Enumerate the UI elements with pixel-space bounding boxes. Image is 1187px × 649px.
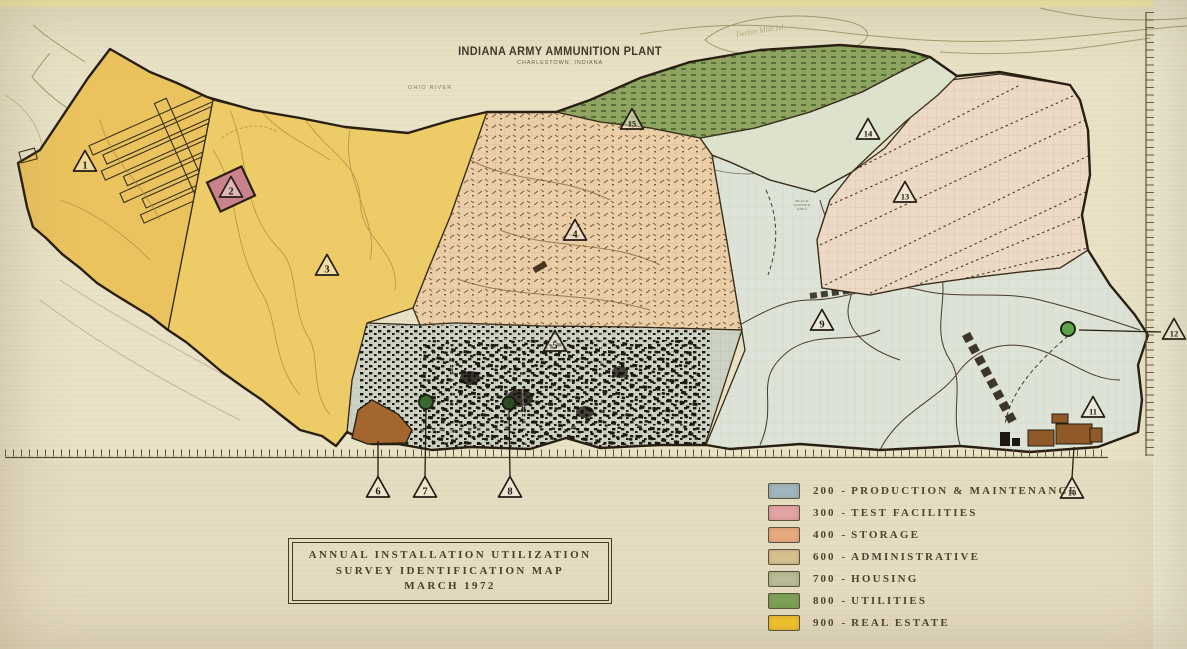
legend-item-300: 300-TEST FACILITIES — [768, 502, 1078, 524]
legend-name: TEST FACILITIES — [851, 507, 977, 519]
marker-number: 6 — [375, 487, 380, 498]
title-box-line-2: SURVEY IDENTIFICATION MAP — [336, 564, 564, 579]
legend-separator: - — [842, 595, 846, 607]
legend-separator: - — [842, 617, 846, 629]
site-7-circle — [419, 395, 433, 409]
legend-label: 900-REAL ESTATE — [813, 617, 950, 629]
legend-color-swatch — [768, 615, 800, 632]
marker-number: 2 — [228, 187, 233, 198]
zone-5-buildings — [360, 325, 710, 450]
title-box-line-3: MARCH 1972 — [404, 579, 496, 594]
legend-item-400: 400-STORAGE — [768, 524, 1078, 546]
map-subtitle: CHARLESTOWN, INDIANA — [375, 60, 745, 66]
legend-code: 200 — [813, 485, 836, 497]
legend-name: UTILITIES — [851, 595, 927, 607]
marker-number: 4 — [572, 230, 578, 241]
legend-item-800: 800-UTILITIES — [768, 590, 1078, 612]
marker-number: 15 — [628, 119, 637, 129]
marker-number: 8 — [507, 487, 512, 498]
legend-item-700: 700-HOUSING — [768, 568, 1078, 590]
marker-number: 1 — [82, 161, 87, 172]
marker-number: 7 — [422, 487, 427, 498]
legend-color-swatch — [768, 505, 800, 522]
legend-label: 400-STORAGE — [813, 529, 920, 541]
map-title-box: ANNUAL INSTALLATION UTILIZATION SURVEY I… — [288, 538, 612, 604]
marker-number: 12 — [1170, 329, 1179, 339]
marker-number: 11 — [1089, 407, 1097, 417]
legend-name: STORAGE — [851, 529, 920, 541]
right-margin-ruler — [1146, 12, 1150, 456]
legend-code: 300 — [813, 507, 836, 519]
legend-label: 700-HOUSING — [813, 573, 919, 585]
legend-name: HOUSING — [851, 573, 918, 585]
legend-label: 300-TEST FACILITIES — [813, 507, 978, 519]
legend-color-swatch — [768, 549, 800, 566]
legend-color-swatch — [768, 527, 800, 544]
legend-label: 800-UTILITIES — [813, 595, 927, 607]
marker-6: 6 — [367, 441, 390, 498]
land-use-legend: 200-PRODUCTION & MAINTENANCE 300-TEST FA… — [768, 480, 1078, 634]
legend-label: 600-ADMINISTRATIVE — [813, 551, 980, 563]
legend-separator: - — [842, 529, 846, 541]
site-8-circle — [503, 397, 516, 410]
legend-item-900: 900-REAL ESTATE — [768, 612, 1078, 634]
legend-name: PRODUCTION & MAINTENANCE — [851, 485, 1078, 497]
legend-separator: - — [842, 485, 846, 497]
site-12-circle — [1061, 322, 1075, 336]
map-title: INDIANA ARMY AMMUNITION PLANT — [384, 46, 736, 58]
legend-color-swatch — [768, 483, 800, 500]
marker-number: 5 — [552, 341, 557, 352]
legend-code: 800 — [813, 595, 836, 607]
map-title-box-inner: ANNUAL INSTALLATION UTILIZATION SURVEY I… — [292, 542, 609, 601]
legend-separator: - — [842, 573, 846, 585]
marker-number: 14 — [864, 129, 873, 139]
legend-item-200: 200-PRODUCTION & MAINTENANCE — [768, 480, 1078, 502]
legend-color-swatch — [768, 571, 800, 588]
title-box-line-1: ANNUAL INSTALLATION UTILIZATION — [309, 548, 592, 563]
legend-separator: - — [842, 551, 846, 563]
marker-10-leader — [1072, 447, 1074, 478]
marker-number: 9 — [819, 320, 824, 331]
legend-separator: - — [842, 507, 846, 519]
legend-item-600: 600-ADMINISTRATIVE — [768, 546, 1078, 568]
marker-number: 3 — [324, 265, 329, 276]
legend-name: REAL ESTATE — [851, 617, 950, 629]
legend-name: ADMINISTRATIVE — [851, 551, 980, 563]
ohio-river-label: OHIO RIVER — [408, 85, 452, 91]
legend-label: 200-PRODUCTION & MAINTENANCE — [813, 485, 1078, 497]
legend-code: 400 — [813, 529, 836, 541]
marker-number: 13 — [901, 192, 910, 202]
black-powder-area-label: BLACK POWDER AREA — [789, 199, 815, 211]
legend-color-swatch — [768, 593, 800, 610]
railroad-line — [5, 453, 1108, 458]
legend-code: 600 — [813, 551, 836, 563]
map-photo: 123456789101112131415 INDIANA ARMY AMMUN… — [0, 0, 1187, 649]
legend-code: 700 — [813, 573, 836, 585]
legend-code: 900 — [813, 617, 836, 629]
